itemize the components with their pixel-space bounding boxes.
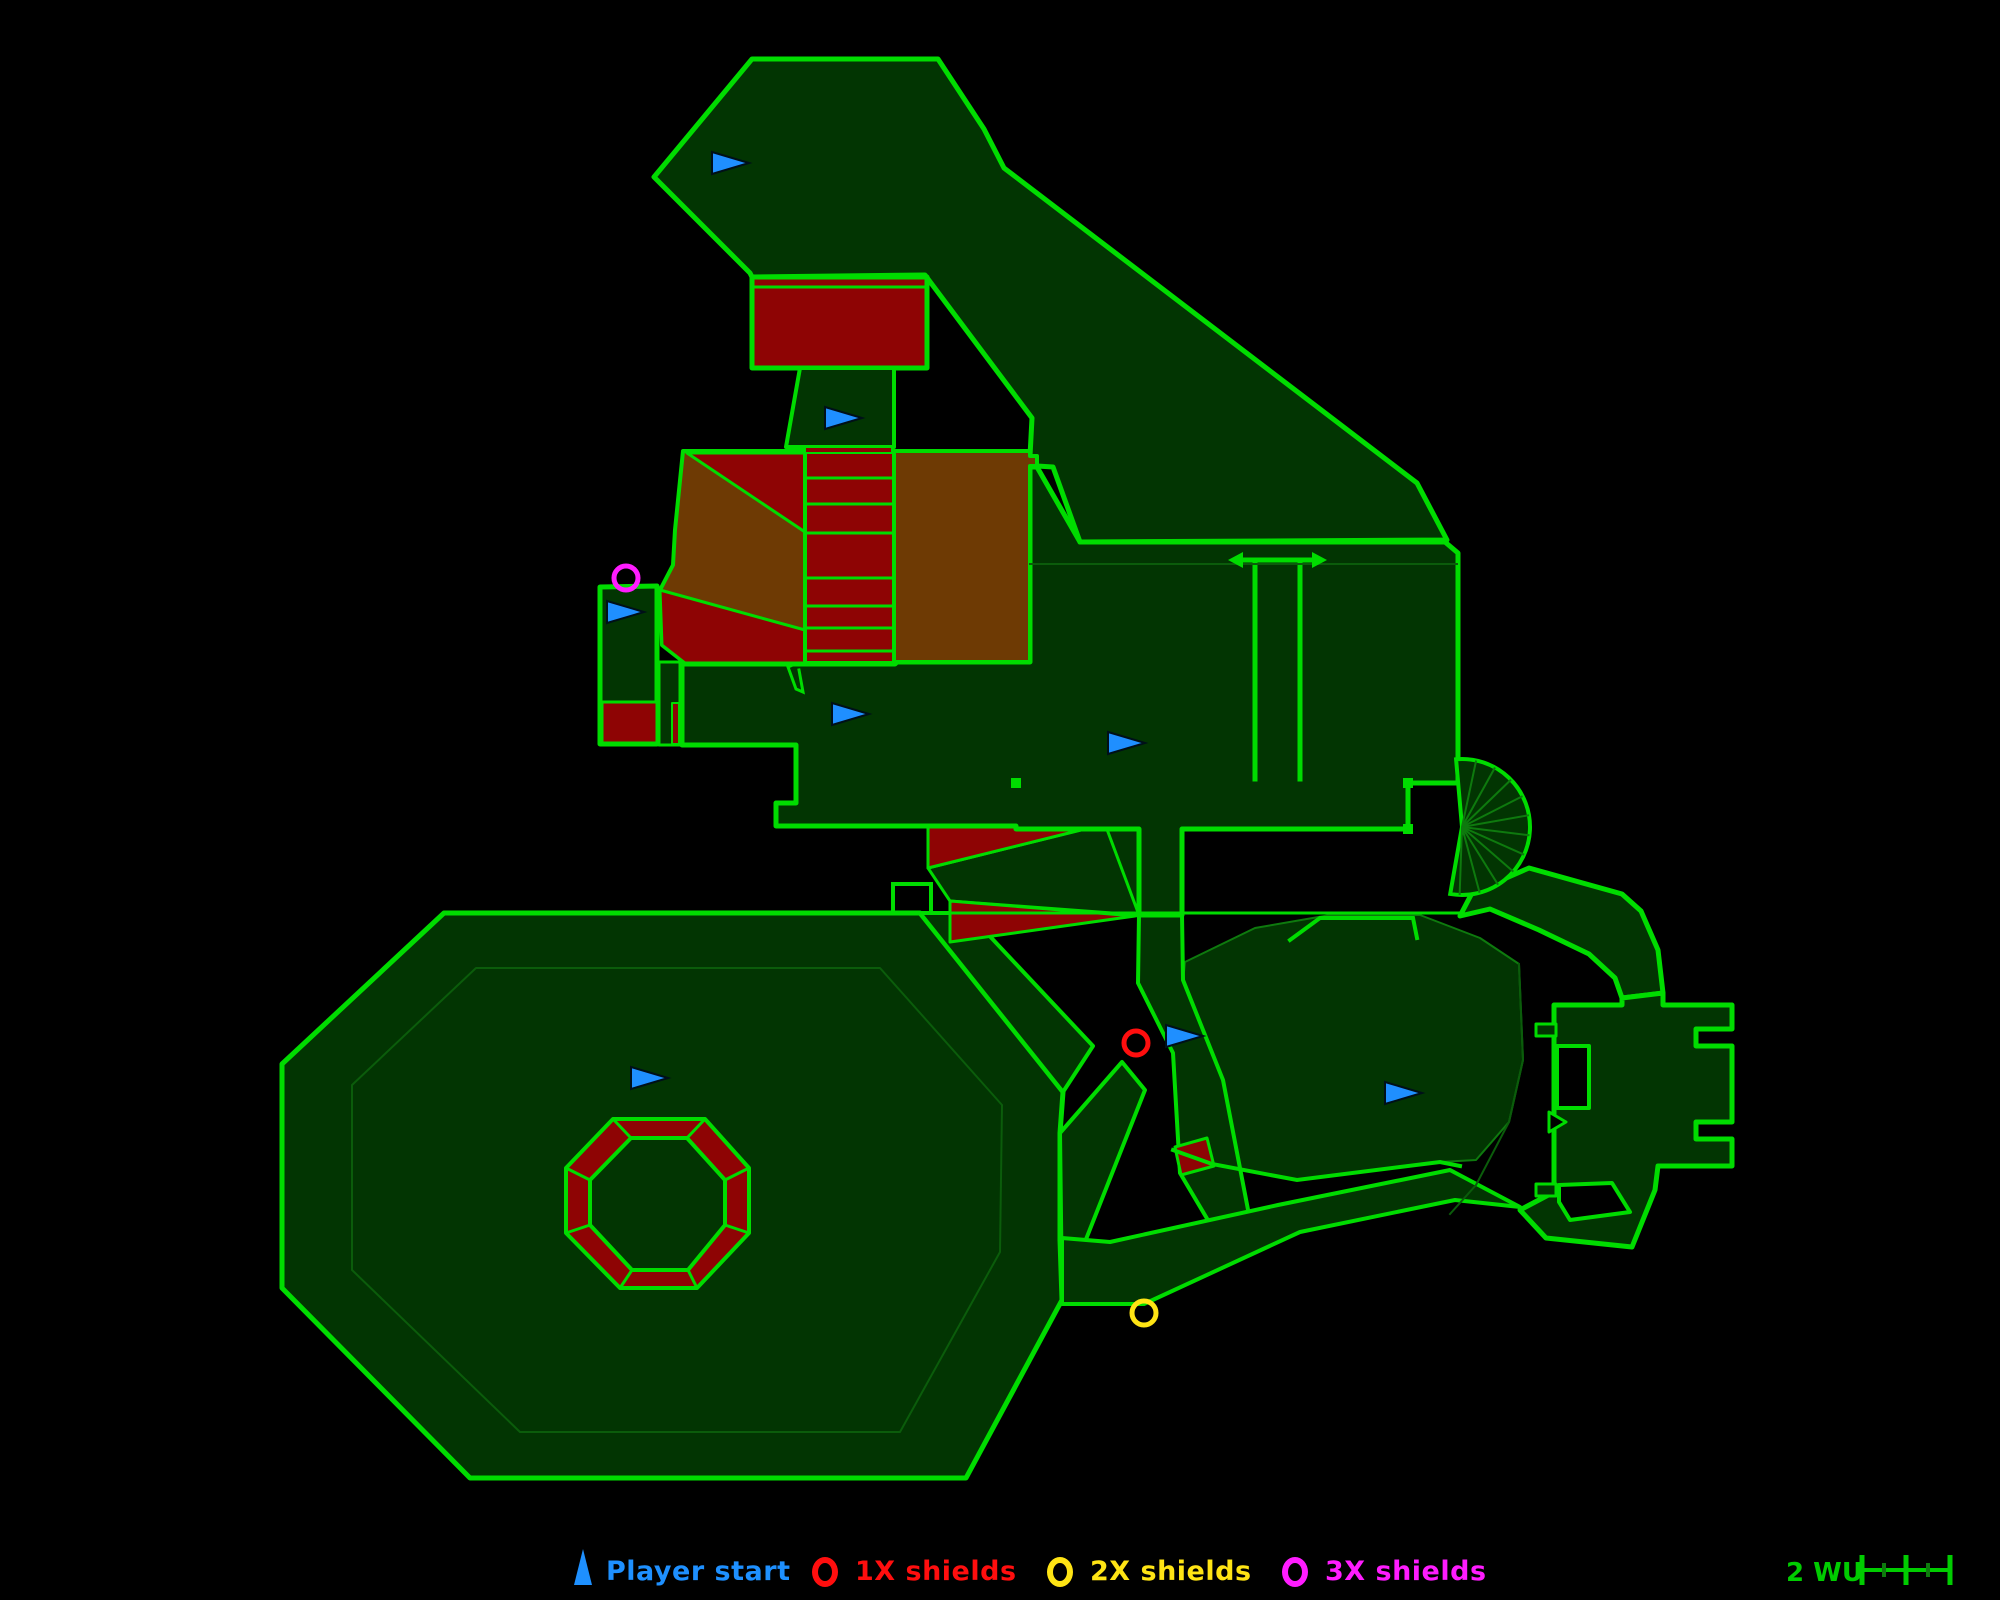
- level-map-svg: [0, 0, 2000, 1600]
- shaft-red-strip: [805, 447, 892, 453]
- vertex-dot: [1011, 778, 1021, 788]
- legend: Player start 1X shields 2X shields 3X sh…: [0, 1545, 2000, 1600]
- east-inset-window: [1557, 1046, 1589, 1108]
- scale-ruler: [0, 1545, 2000, 1600]
- octagon-top-bump: [893, 884, 931, 911]
- west-room-red: [602, 702, 657, 743]
- west-strip-red: [672, 703, 679, 744]
- map-canvas[interactable]: [0, 0, 2000, 1600]
- shield-1x: [1124, 1031, 1148, 1055]
- vertex-dot: [1403, 778, 1413, 788]
- red-platform-top: [752, 277, 927, 368]
- staircase: [805, 451, 894, 663]
- bottom-corridor: [1062, 1170, 1520, 1304]
- east-tab-upper: [1536, 1024, 1556, 1036]
- brown-box: [894, 451, 1037, 662]
- vertex-dot: [1403, 824, 1413, 834]
- shaft: [786, 368, 894, 447]
- east-tab-lower: [1536, 1184, 1556, 1196]
